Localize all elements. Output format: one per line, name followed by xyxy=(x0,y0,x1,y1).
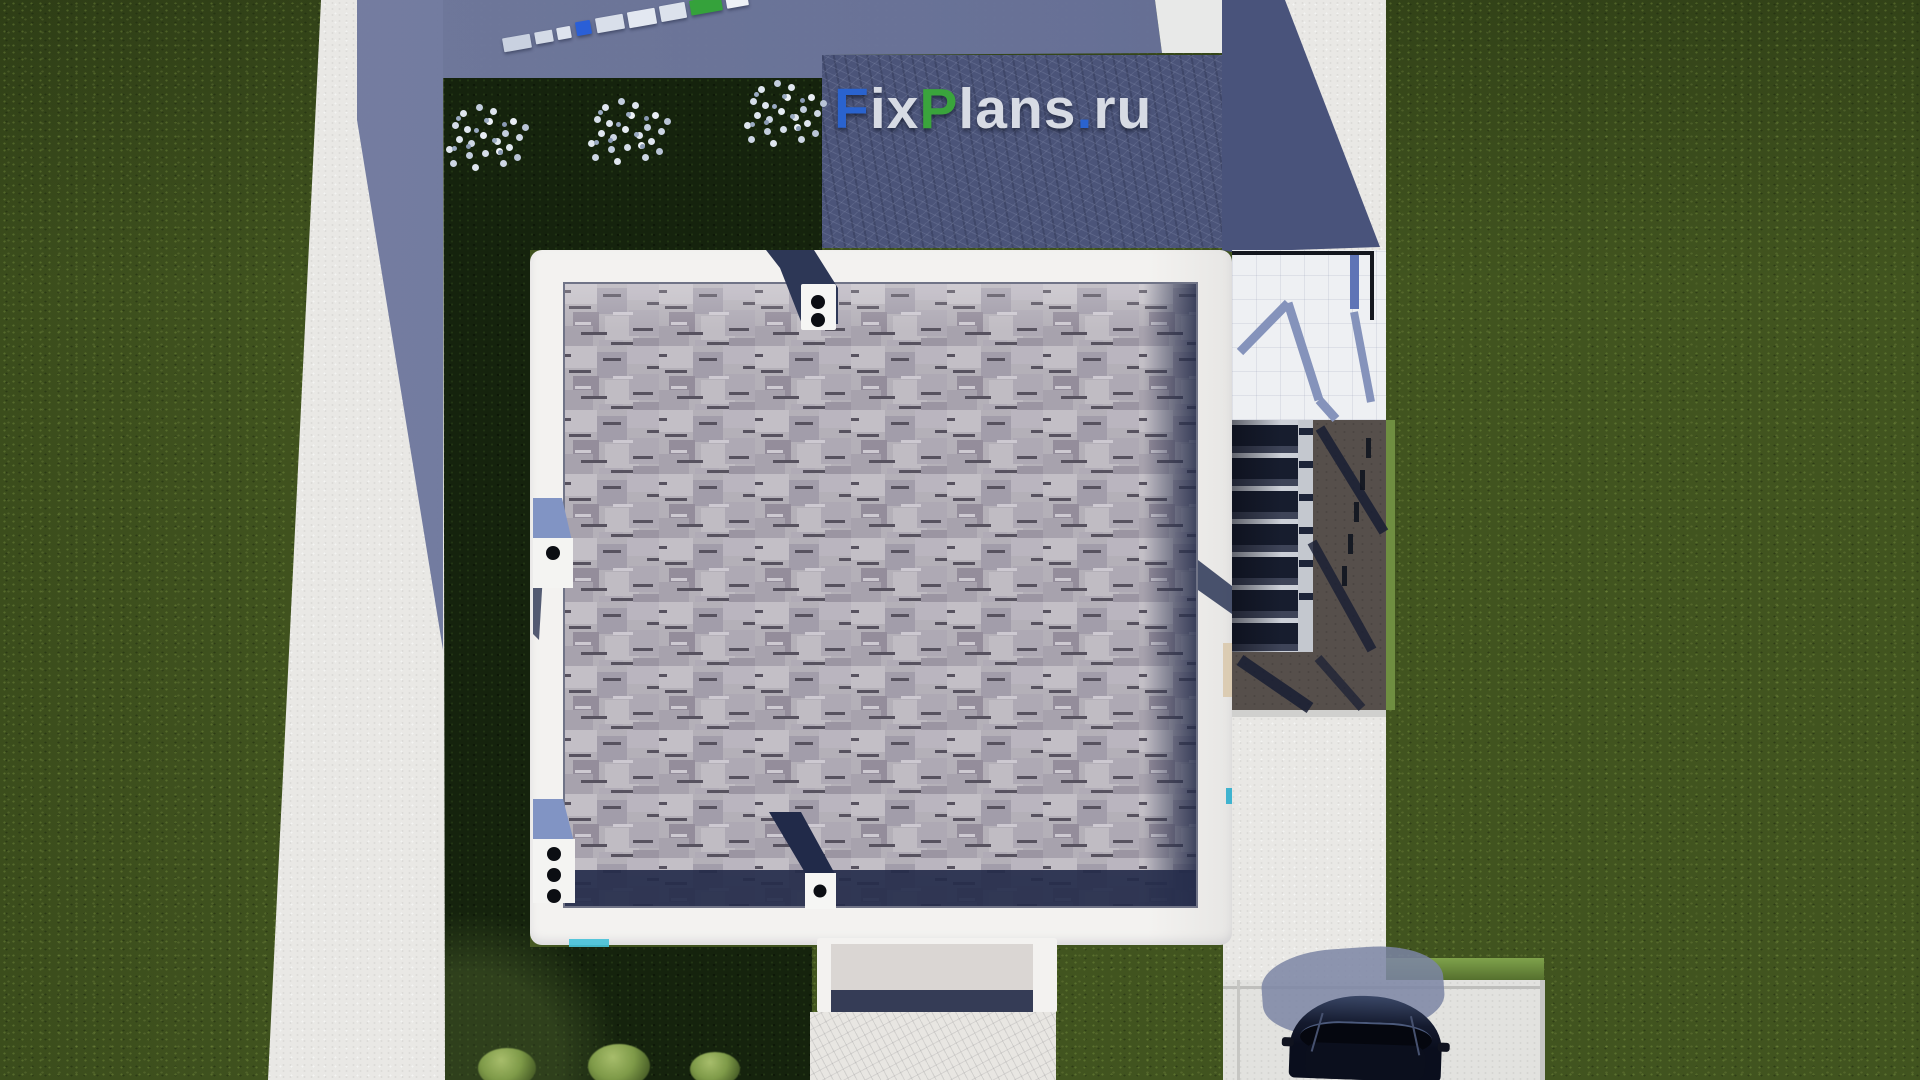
porch-pad xyxy=(831,944,1033,990)
roof-top-highlight xyxy=(563,282,1198,332)
watermark-seg-ru: ru xyxy=(1093,77,1152,141)
fence-panel-blue xyxy=(575,20,592,36)
green-bush xyxy=(588,1044,650,1080)
watermark-seg-f: F xyxy=(834,77,870,141)
landing-pad xyxy=(1313,420,1386,710)
stair-stringer xyxy=(1298,420,1313,652)
green-bush xyxy=(690,1052,740,1080)
green-bush xyxy=(478,1048,536,1080)
fence-panel xyxy=(556,26,572,40)
roof-bottom-shadow xyxy=(563,870,1198,908)
lit-grass-sliver xyxy=(1386,420,1395,710)
watermark-seg-p: P xyxy=(919,77,958,141)
stairs-shadow xyxy=(1232,420,1298,652)
porch-shadow xyxy=(831,990,1033,1012)
driveway-joint-vertical xyxy=(1237,980,1240,1080)
car-roof xyxy=(1305,1042,1426,1080)
entrance-walkway xyxy=(810,1012,1056,1080)
landing-pad-lower xyxy=(1232,652,1313,710)
car-mirror xyxy=(1282,1037,1294,1046)
white-bush xyxy=(778,108,785,115)
roof-shingles xyxy=(563,282,1198,908)
watermark-panel: FixPlans.ru xyxy=(822,55,1222,248)
terrace-right xyxy=(1232,250,1386,420)
roof-right-shadow xyxy=(1143,282,1198,908)
concrete-band-right xyxy=(1223,710,1386,980)
watermark-seg-ix: ix xyxy=(870,77,920,141)
car xyxy=(1289,993,1444,1080)
watermark-seg-dot: . xyxy=(1076,77,1093,141)
white-bush xyxy=(480,132,487,139)
driveway-right-edge xyxy=(1540,980,1545,1080)
car-mirror xyxy=(1438,1043,1450,1052)
concrete-band-edge xyxy=(1232,710,1386,717)
watermark-seg-lans: lans xyxy=(958,77,1076,141)
white-bush xyxy=(622,126,629,133)
watermark-text: FixPlans.ru xyxy=(834,81,1152,138)
aerial-render-scene: FixPlans.ru xyxy=(0,0,1920,1080)
